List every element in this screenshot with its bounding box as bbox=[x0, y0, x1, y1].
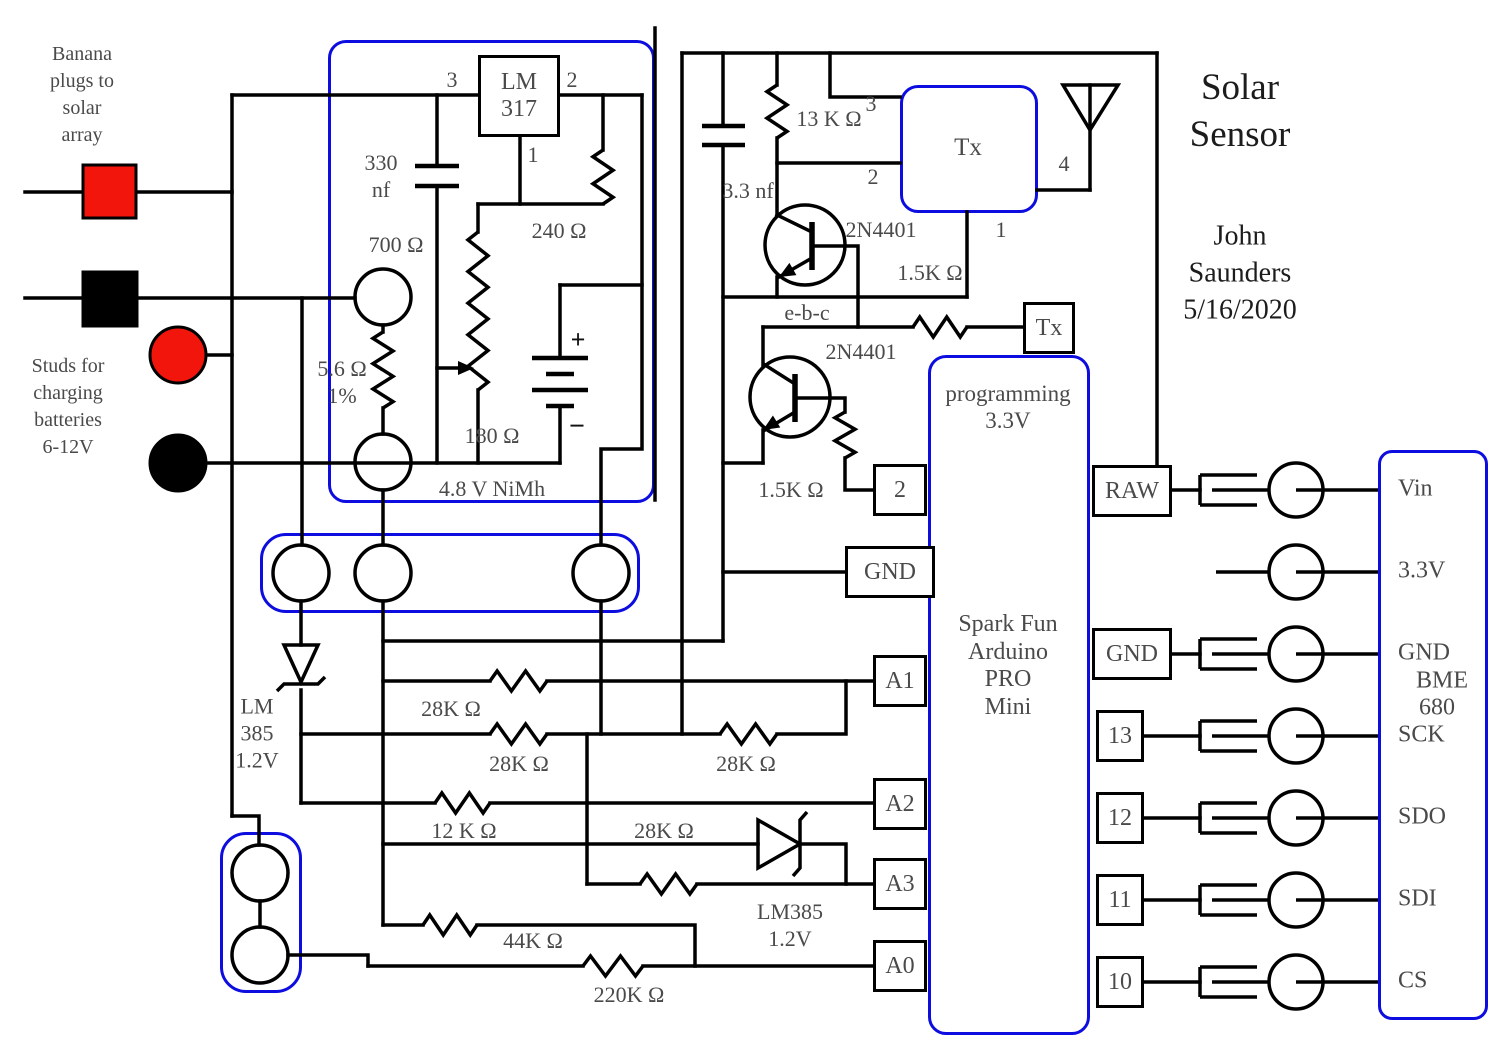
resistor-5-6ohm bbox=[373, 332, 393, 408]
studs-note: Studs forcharging batteries6-12V bbox=[32, 353, 105, 461]
r700-label: 700 Ω bbox=[369, 232, 424, 258]
bme-pin-sck: SCK bbox=[1398, 722, 1445, 749]
arduino-pin-13: 13 bbox=[1096, 710, 1144, 762]
r12k-label: 12 K Ω bbox=[431, 818, 496, 844]
arduino-pin-12: 12 bbox=[1096, 792, 1144, 844]
capacitor-330nf bbox=[415, 166, 459, 186]
battery-plus: + bbox=[571, 325, 586, 355]
battery-4-8v bbox=[532, 358, 588, 406]
tx2-box: Tx bbox=[1023, 302, 1075, 354]
arduino-pin-gnd2: GND bbox=[1092, 628, 1172, 680]
arrowheads bbox=[458, 263, 796, 430]
bme-pin-3v3: 3.3V bbox=[1398, 558, 1445, 585]
r28k-c-label: 28K Ω bbox=[716, 751, 776, 777]
q1-label: 2N4401 bbox=[846, 217, 917, 243]
zener-lm385-ref bbox=[758, 812, 807, 876]
arduino-pin-gnd: GND bbox=[845, 546, 935, 598]
battery-label: 4.8 V NiMh bbox=[439, 476, 545, 502]
tx-pin3-label: 3 bbox=[866, 91, 877, 117]
lm317-pin1-label: 1 bbox=[528, 142, 539, 168]
ebc-label: e-b-c bbox=[784, 300, 829, 326]
resistor-240ohm bbox=[593, 150, 613, 204]
header-connectors bbox=[1200, 463, 1378, 1009]
r56-label: 5.6 Ω1% bbox=[317, 355, 366, 409]
zener1-label: LM3851.2V bbox=[235, 693, 278, 774]
r240-label: 240 Ω bbox=[532, 218, 587, 244]
capacitor-3-3nf bbox=[702, 126, 745, 145]
arduino-pin-11: 11 bbox=[1096, 874, 1144, 926]
resistor-1-5k-q2 bbox=[835, 412, 855, 458]
resistor-12k bbox=[435, 793, 490, 813]
banana-plug-positive bbox=[83, 165, 136, 218]
resistor-44k bbox=[423, 915, 477, 935]
page-title: SolarSensor bbox=[1190, 64, 1291, 158]
cap-3-3nf-label: 3.3 nf bbox=[722, 178, 773, 204]
resistor-28k-c bbox=[720, 724, 777, 744]
bme-pin-sdi: SDI bbox=[1398, 886, 1437, 913]
resistor-28k-b bbox=[490, 724, 547, 744]
bme-name-2: 680 bbox=[1419, 695, 1455, 722]
zener2-label: LM3851.2V bbox=[757, 898, 823, 952]
resistor-1-5k-q1 bbox=[913, 317, 967, 337]
q1-r-label: 1.5K Ω bbox=[897, 260, 962, 286]
bme-pin-sdo: SDO bbox=[1398, 804, 1446, 831]
arduino-name: Spark FunArduino PROMini bbox=[958, 611, 1057, 721]
battery-minus: − bbox=[569, 411, 585, 443]
arduino-pin-a1: A1 bbox=[873, 655, 927, 707]
author-date: JohnSaunders5/16/2020 bbox=[1183, 218, 1297, 329]
resistor-28k-a1 bbox=[490, 671, 547, 691]
zener-lm385-shunt bbox=[277, 645, 325, 691]
banana-note: Bananaplugs to solararray bbox=[50, 41, 114, 149]
cap-330nf-label: 330nf bbox=[365, 149, 398, 203]
bme-pin-vin: Vin bbox=[1398, 476, 1433, 503]
arduino-pin-a0: A0 bbox=[873, 940, 927, 992]
arduino-pin-raw: RAW bbox=[1092, 465, 1172, 517]
r220k-label: 220K Ω bbox=[594, 982, 665, 1008]
lm317-box: LM317 bbox=[478, 55, 560, 137]
arduino-pin-10: 10 bbox=[1096, 956, 1144, 1008]
charging-stud-positive bbox=[150, 327, 206, 383]
r44k-label: 44K Ω bbox=[503, 928, 563, 954]
arduino-pin-a3: A3 bbox=[873, 858, 927, 910]
q2-r-label: 1.5K Ω bbox=[758, 477, 823, 503]
bme-pin-cs: CS bbox=[1398, 968, 1427, 995]
resistor-13k bbox=[767, 85, 787, 138]
resistor-220k bbox=[583, 956, 643, 976]
schematic-page: LM317 Tx 2 GND A1 A2 A3 A0 RAW GND 13 12… bbox=[0, 0, 1499, 1049]
tx-pin4-label: 4 bbox=[1059, 151, 1070, 177]
r28k-a-label: 28K Ω bbox=[421, 696, 481, 722]
resistor-28k-a3 bbox=[640, 874, 697, 894]
tx-label: Tx bbox=[954, 134, 982, 162]
r28k-d-label: 28K Ω bbox=[634, 818, 694, 844]
bme-pin-gnd: GND bbox=[1398, 640, 1450, 667]
lm317-pin3-label: 3 bbox=[447, 67, 458, 93]
r13k-label: 13 K Ω bbox=[796, 106, 861, 132]
arduino-pin-2: 2 bbox=[873, 464, 927, 516]
r28k-b-label: 28K Ω bbox=[489, 751, 549, 777]
pot180-label: 180 Ω bbox=[465, 423, 520, 449]
arduino-programming-note: programming3.3V bbox=[945, 380, 1070, 434]
q2-label: 2N4401 bbox=[826, 339, 897, 365]
tx-pin1-label: 1 bbox=[996, 217, 1007, 243]
tx-pin2-label: 2 bbox=[868, 164, 879, 190]
arduino-pin-a2: A2 bbox=[873, 778, 927, 830]
charging-stud-negative bbox=[150, 435, 206, 491]
bme-name-1: BME bbox=[1416, 668, 1468, 695]
banana-plug-negative bbox=[83, 272, 137, 326]
resistor-pot-180ohm bbox=[468, 232, 488, 390]
lm317-pin2-label: 2 bbox=[567, 67, 578, 93]
